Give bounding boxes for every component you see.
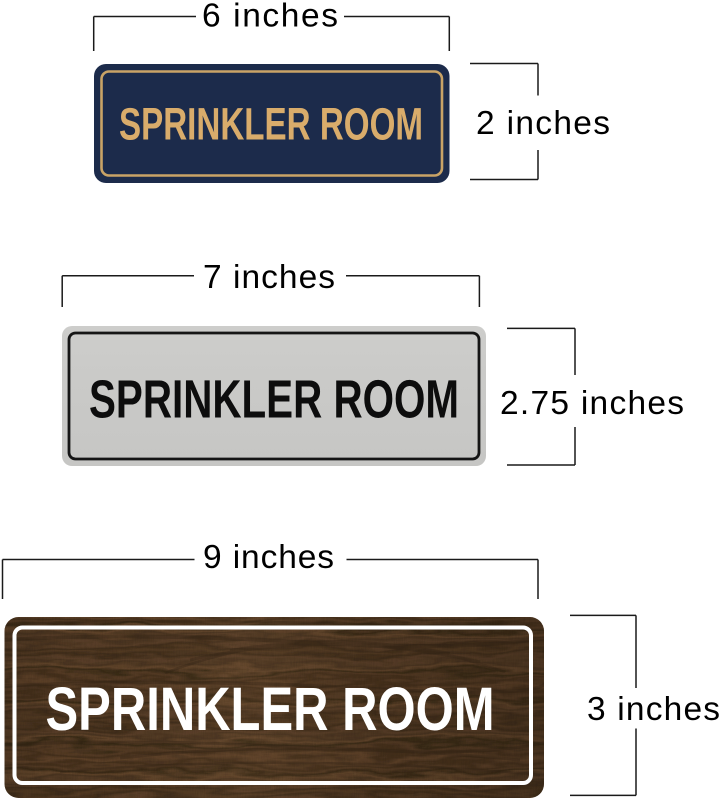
- svg-text:2 inches: 2 inches: [476, 105, 610, 142]
- svg-text:SPRINKLER ROOM: SPRINKLER ROOM: [119, 98, 423, 149]
- svg-text:SPRINKLER ROOM: SPRINKLER ROOM: [89, 371, 459, 430]
- svg-text:9 inches: 9 inches: [203, 539, 334, 576]
- svg-text:SPRINKLER ROOM: SPRINKLER ROOM: [46, 675, 495, 743]
- svg-text:3 inches: 3 inches: [587, 691, 720, 728]
- svg-text:2.75 inches: 2.75 inches: [500, 385, 684, 422]
- svg-text:6 inches: 6 inches: [202, 0, 338, 35]
- svg-text:7 inches: 7 inches: [203, 259, 335, 296]
